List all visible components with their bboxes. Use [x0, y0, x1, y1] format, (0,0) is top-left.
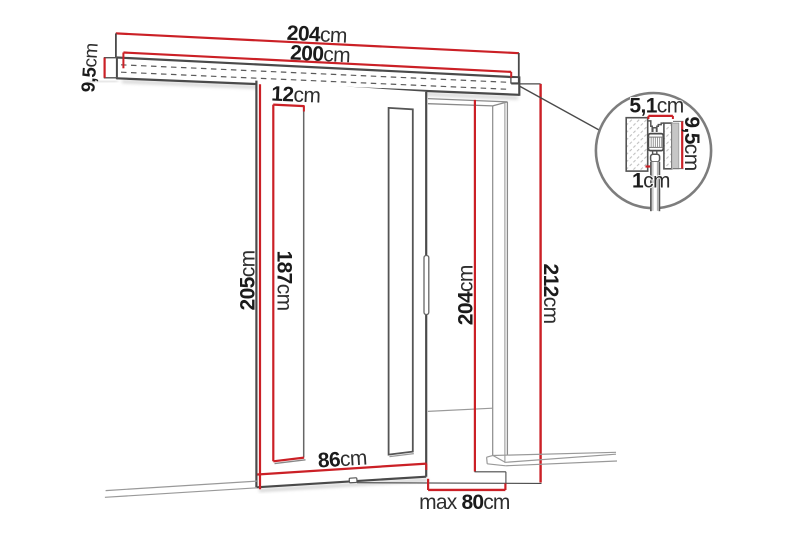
svg-text:200cm: 200cm	[290, 41, 351, 67]
svg-text:9,5cm: 9,5cm	[78, 43, 102, 94]
svg-text:9,5cm: 9,5cm	[681, 116, 704, 170]
svg-text:205cm: 205cm	[236, 250, 259, 310]
svg-text:212cm: 212cm	[540, 263, 563, 323]
svg-text:5,1cm: 5,1cm	[629, 95, 683, 118]
svg-text:1cm: 1cm	[632, 169, 670, 192]
svg-text:max 80cm: max 80cm	[419, 491, 510, 514]
svg-text:204cm: 204cm	[454, 265, 477, 325]
svg-text:12cm: 12cm	[271, 83, 321, 108]
svg-text:86cm: 86cm	[317, 447, 367, 473]
svg-text:187cm: 187cm	[273, 250, 296, 310]
